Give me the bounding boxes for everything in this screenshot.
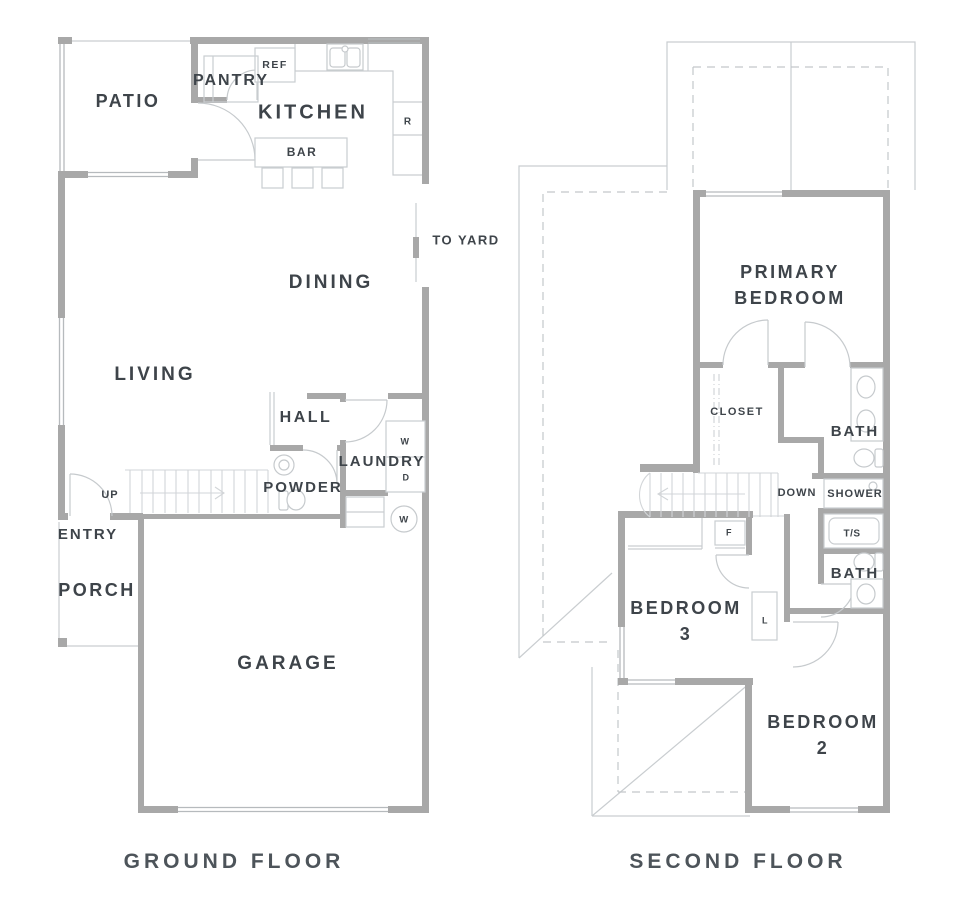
label-entry: ENTRY xyxy=(58,526,118,543)
label-furnace: F xyxy=(726,527,732,537)
floor-plan-canvas: PATIO PANTRY REF KITCHEN BAR R TO YARD D… xyxy=(0,0,980,899)
ground-labels: PATIO PANTRY REF KITCHEN BAR R TO YARD D… xyxy=(58,59,500,674)
label-tub-shower: T/S xyxy=(843,529,860,540)
ground-windows xyxy=(60,39,421,812)
label-living: LIVING xyxy=(114,364,195,385)
label-dining: DINING xyxy=(289,272,374,293)
label-primary-bedroom-1: PRIMARY xyxy=(740,262,840,282)
second-floor-plan: PRIMARY BEDROOM CLOSET BATH DOWN SHOWER … xyxy=(519,42,915,873)
floor-plan-svg: PATIO PANTRY REF KITCHEN BAR R TO YARD D… xyxy=(0,0,980,899)
toilet-icon xyxy=(854,449,883,467)
down-arrow-icon xyxy=(658,488,745,500)
label-up: UP xyxy=(101,489,118,501)
label-down: DOWN xyxy=(778,487,817,499)
ground-floor-title: GROUND FLOOR xyxy=(124,850,345,873)
ground-walls xyxy=(58,37,429,813)
label-ref: REF xyxy=(262,59,288,71)
label-kitchen: KITCHEN xyxy=(258,101,368,123)
second-stairs xyxy=(640,473,785,517)
label-laundry: LAUNDRY xyxy=(339,453,426,470)
pedestal-sink-icon xyxy=(274,455,294,475)
label-bedroom2-1: BEDROOM xyxy=(767,712,879,732)
label-hall: HALL xyxy=(280,409,333,426)
label-shower: SHOWER xyxy=(827,488,883,500)
second-floor-title: SECOND FLOOR xyxy=(629,850,846,873)
label-pantry: PANTRY xyxy=(193,72,269,89)
label-bedroom3-2: 3 xyxy=(680,624,693,644)
primary-bath-fixtures xyxy=(824,368,883,548)
label-bath-hall: BATH xyxy=(831,565,880,582)
label-closet: CLOSET xyxy=(710,406,764,418)
label-to-yard: TO YARD xyxy=(432,232,499,247)
label-water-heater: W xyxy=(399,515,408,526)
ground-floor-plan: PATIO PANTRY REF KITCHEN BAR R TO YARD D… xyxy=(58,37,500,873)
label-range: R xyxy=(404,117,412,128)
sink-icon xyxy=(327,44,363,70)
label-washer: W xyxy=(401,436,410,446)
label-bedroom3-1: BEDROOM xyxy=(630,598,742,618)
label-dryer: D xyxy=(403,472,410,482)
label-primary-bedroom-2: BEDROOM xyxy=(734,288,846,308)
label-garage: GARAGE xyxy=(237,653,338,674)
label-patio: PATIO xyxy=(96,91,161,111)
label-bar: BAR xyxy=(287,145,318,159)
ground-outlines xyxy=(58,41,419,647)
label-bedroom2-2: 2 xyxy=(817,738,830,758)
label-linen: L xyxy=(762,615,768,625)
label-porch: PORCH xyxy=(58,580,136,600)
label-bath-primary: BATH xyxy=(831,423,880,440)
label-powder: POWDER xyxy=(263,479,343,496)
